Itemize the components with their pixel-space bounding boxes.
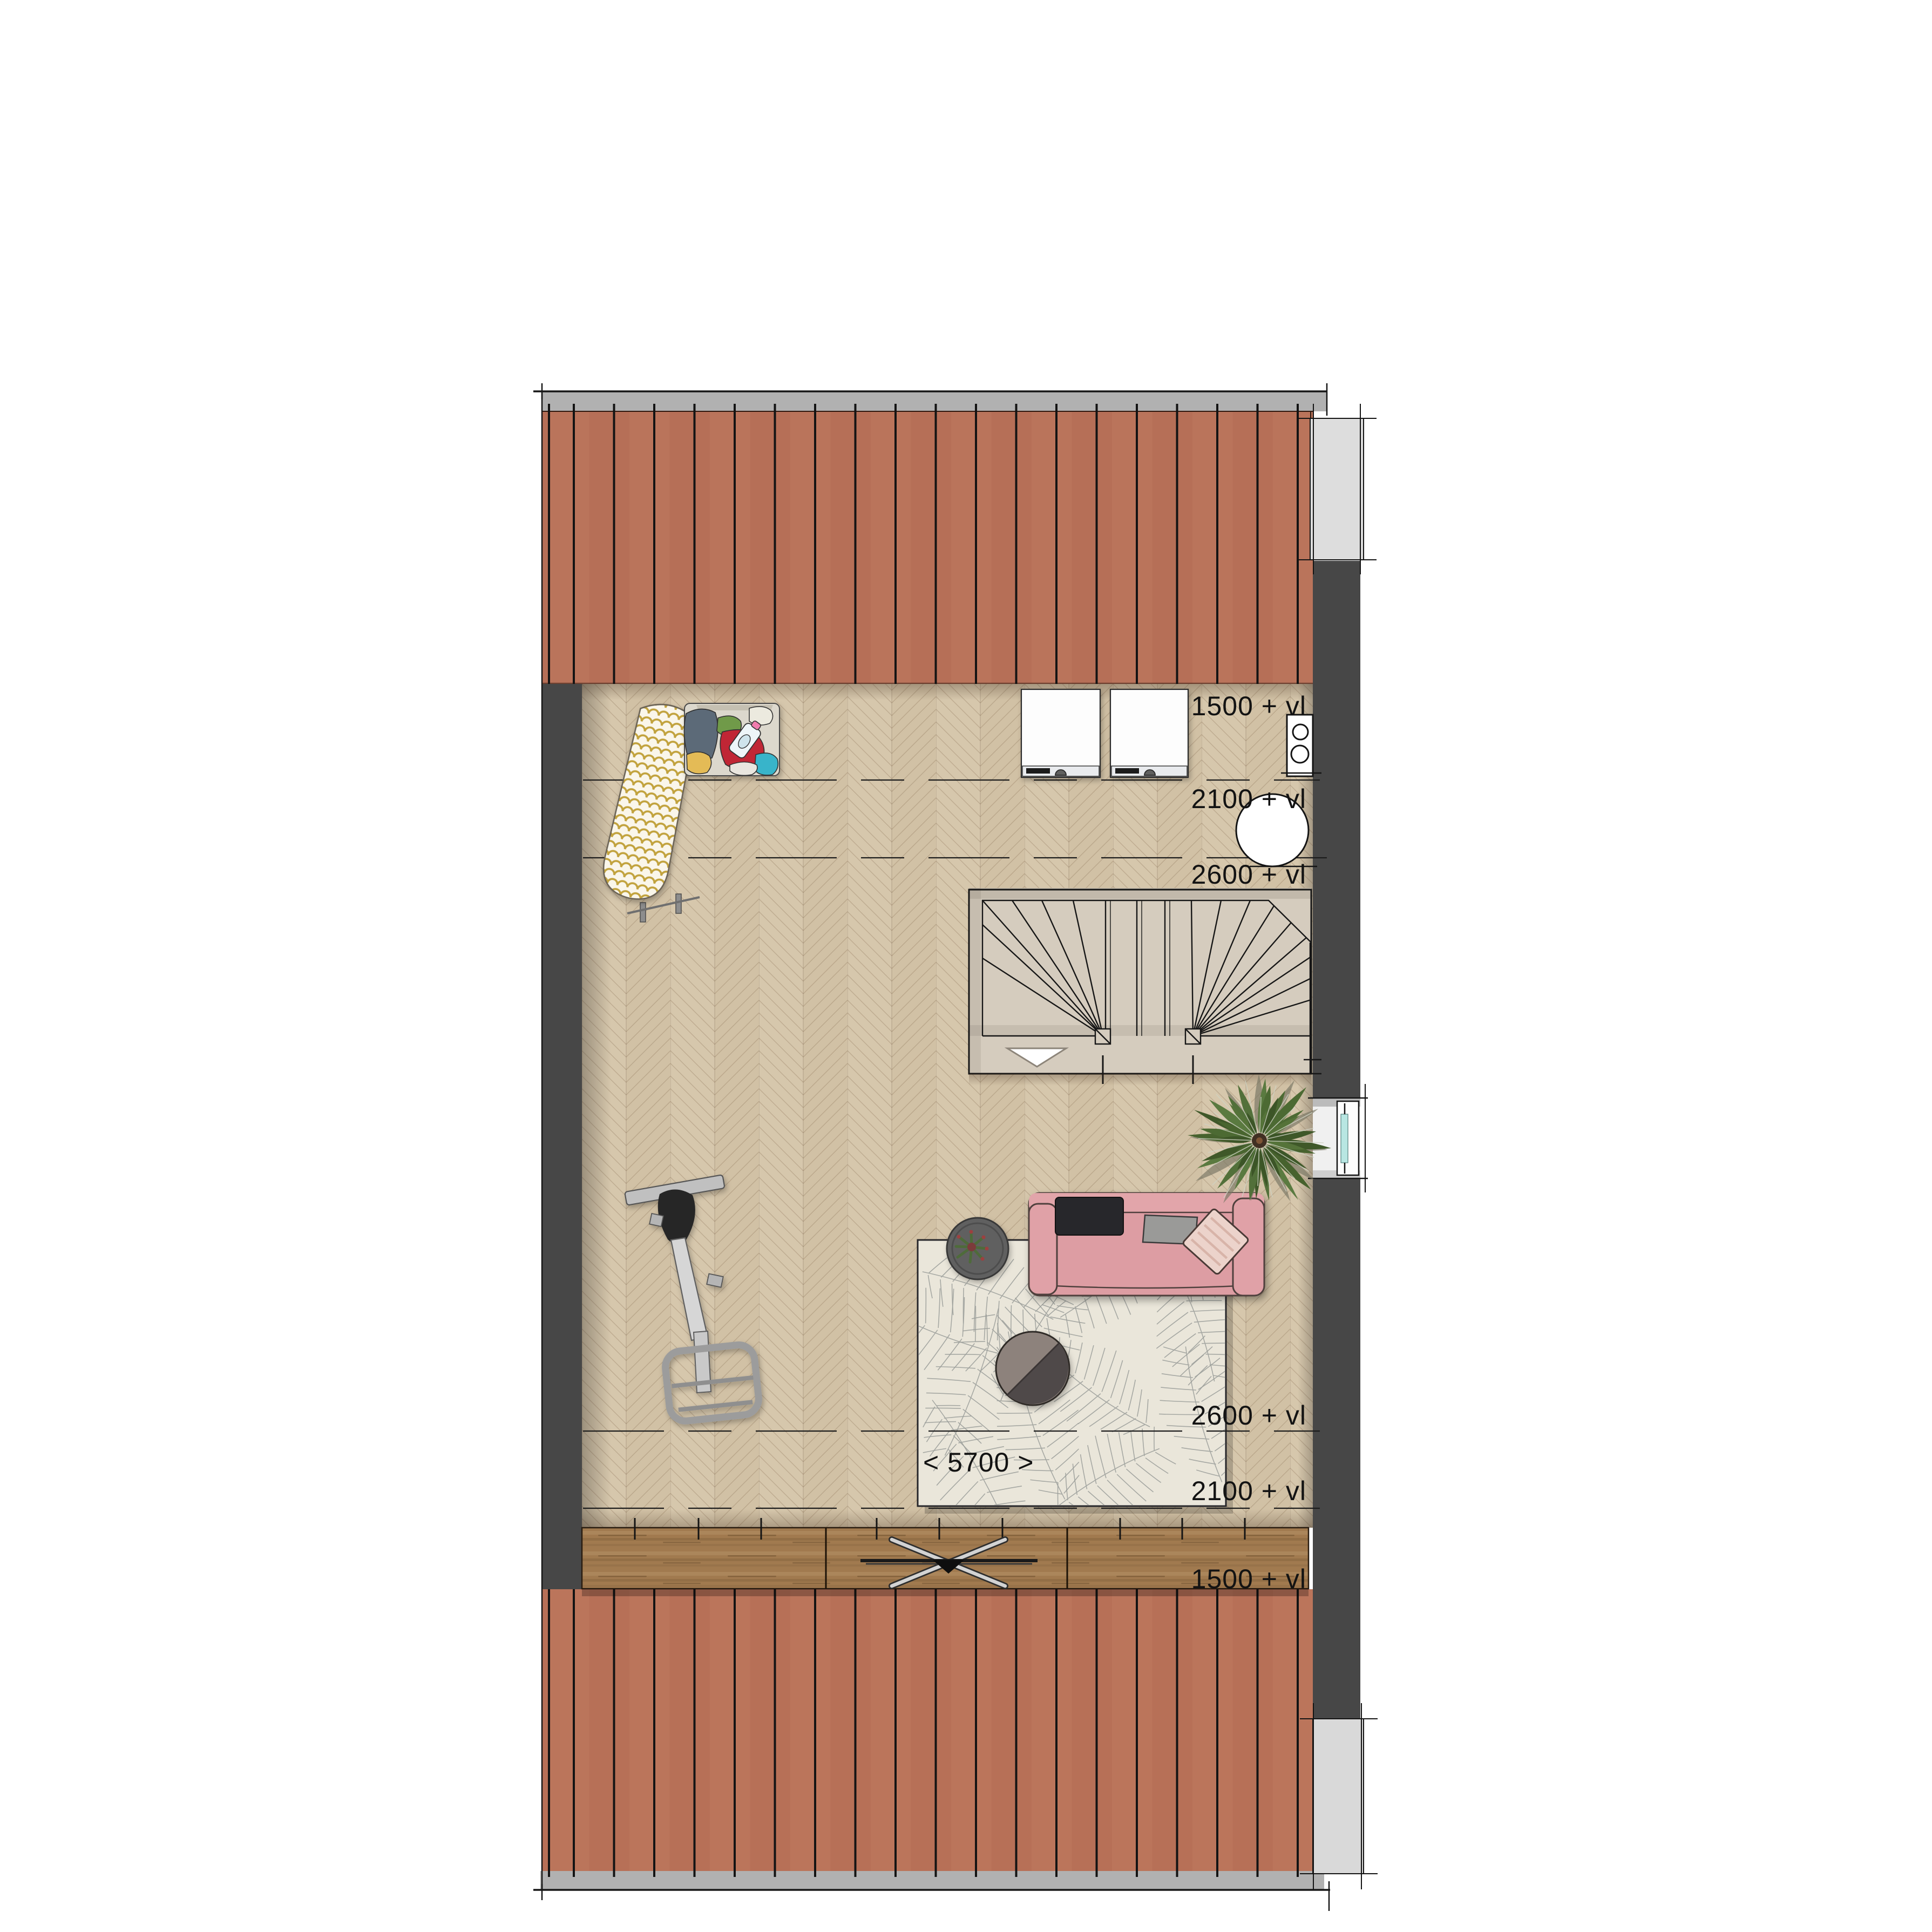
svg-text:2600 + vl: 2600 + vl xyxy=(1191,1400,1306,1431)
svg-text:1500 + vl: 1500 + vl xyxy=(1191,691,1306,721)
svg-text:2600 + vl: 2600 + vl xyxy=(1191,859,1306,890)
svg-text:2100 + vl: 2100 + vl xyxy=(1191,1476,1306,1506)
svg-text:1500 + vl: 1500 + vl xyxy=(1191,1564,1306,1594)
svg-text:2100 + vl: 2100 + vl xyxy=(1191,784,1306,814)
svg-text:< 5700 >: < 5700 > xyxy=(923,1447,1034,1477)
